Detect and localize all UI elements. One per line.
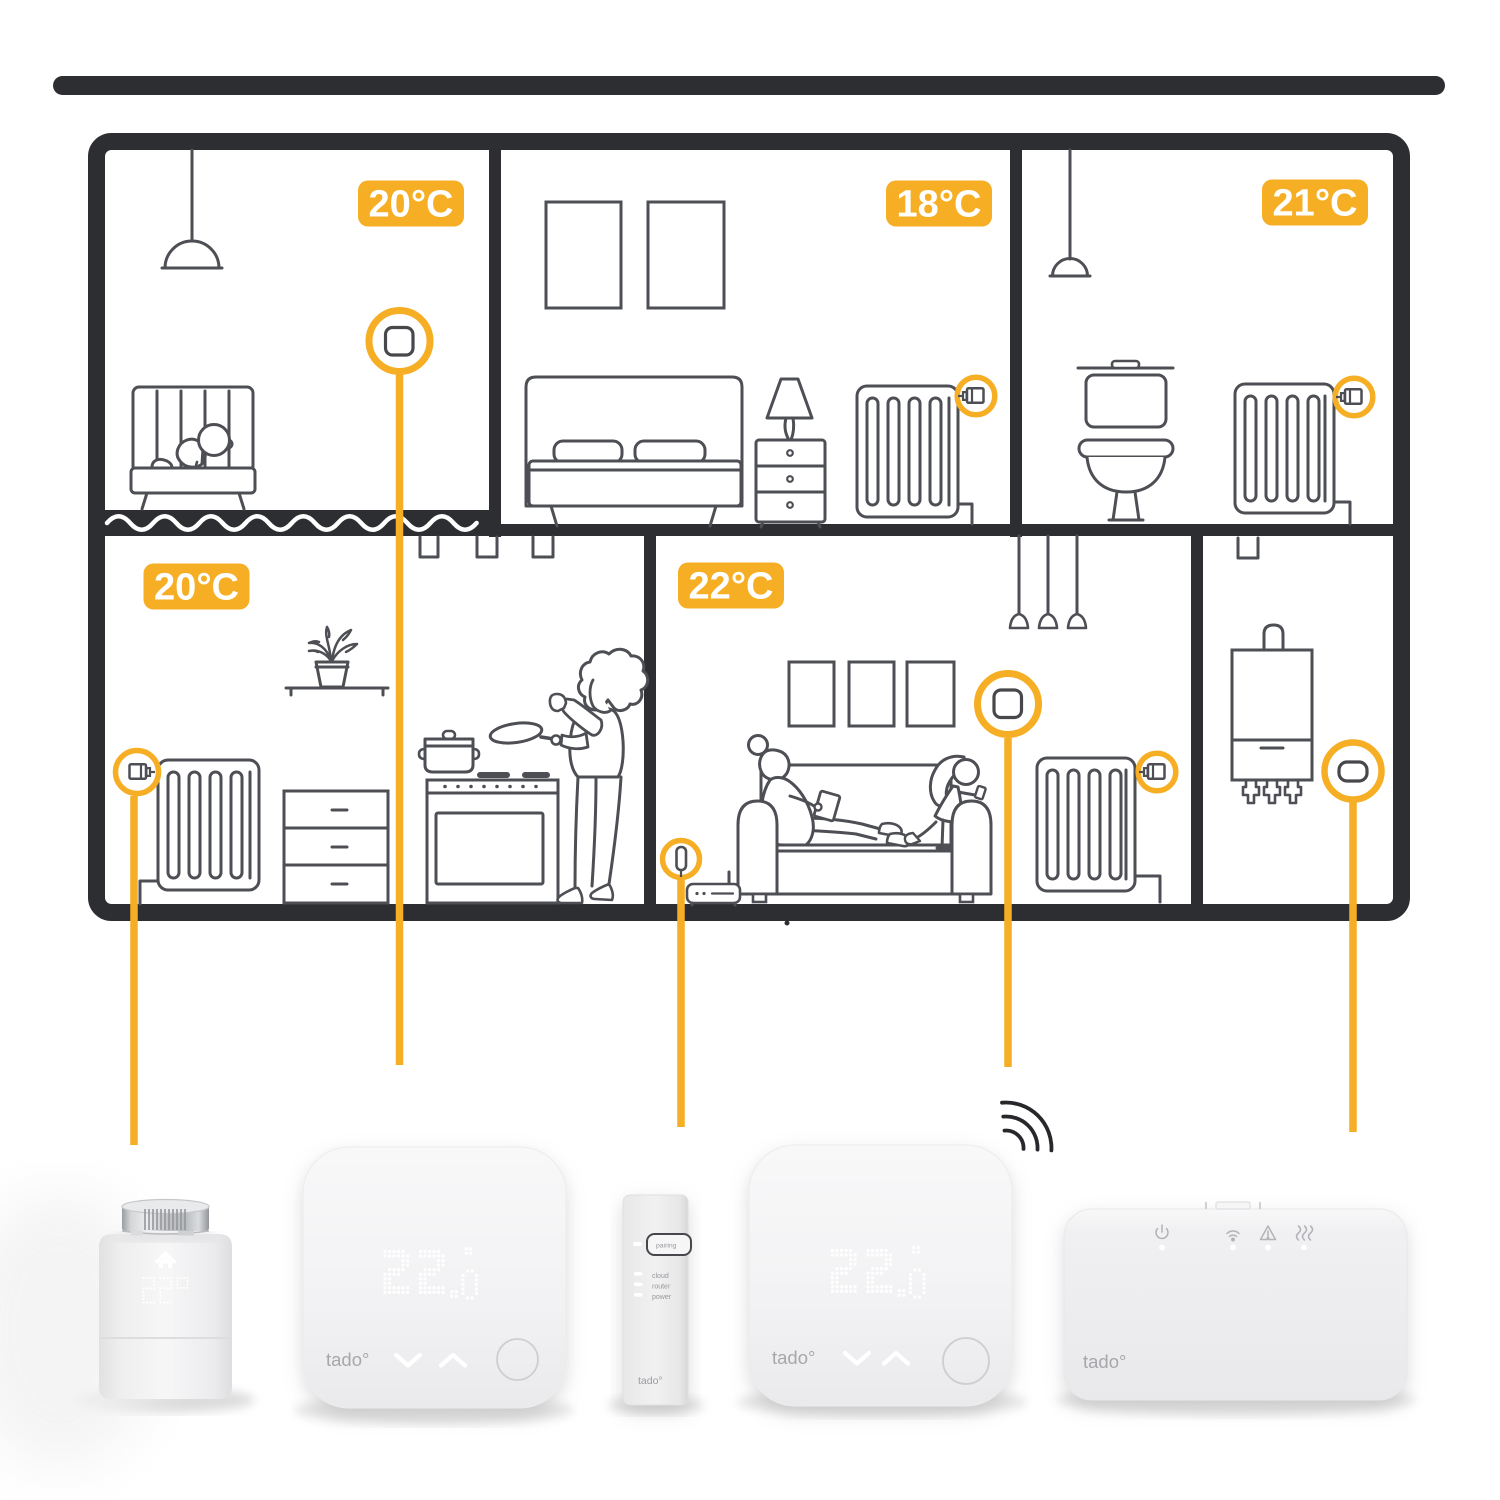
svg-text:pairing: pairing (656, 1243, 677, 1250)
svg-text:power: power (652, 1294, 672, 1301)
svg-text:router: router (652, 1284, 671, 1291)
svg-text:20°C: 20°C (154, 567, 239, 609)
svg-text:tado°: tado° (1083, 1351, 1126, 1372)
svg-text:tado°: tado° (772, 1347, 815, 1368)
svg-text:18°C: 18°C (897, 184, 982, 226)
svg-text:cloud: cloud (652, 1273, 669, 1280)
svg-text:22°C: 22°C (689, 566, 774, 608)
svg-text:21°C: 21°C (1273, 183, 1358, 225)
svg-text:tado°: tado° (326, 1349, 369, 1370)
svg-text:tado°: tado° (638, 1375, 663, 1387)
svg-text:20°C: 20°C (369, 184, 454, 226)
